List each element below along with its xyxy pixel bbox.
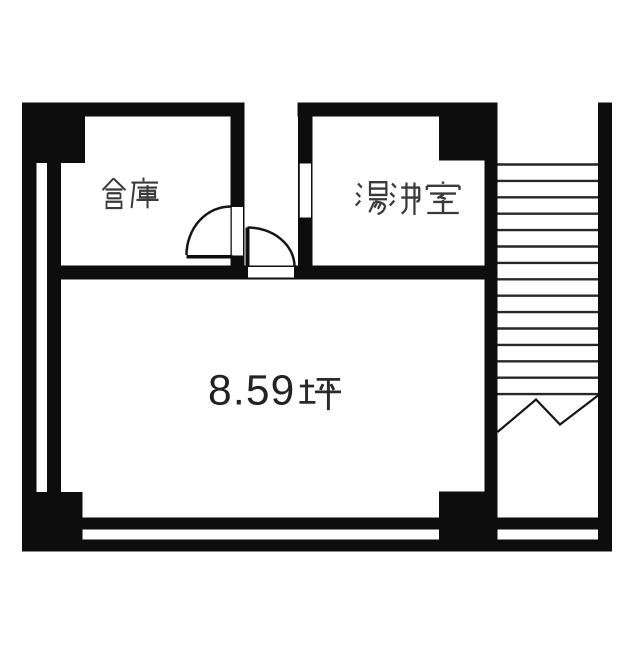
svg-text:8.59: 8.59: [208, 368, 296, 415]
